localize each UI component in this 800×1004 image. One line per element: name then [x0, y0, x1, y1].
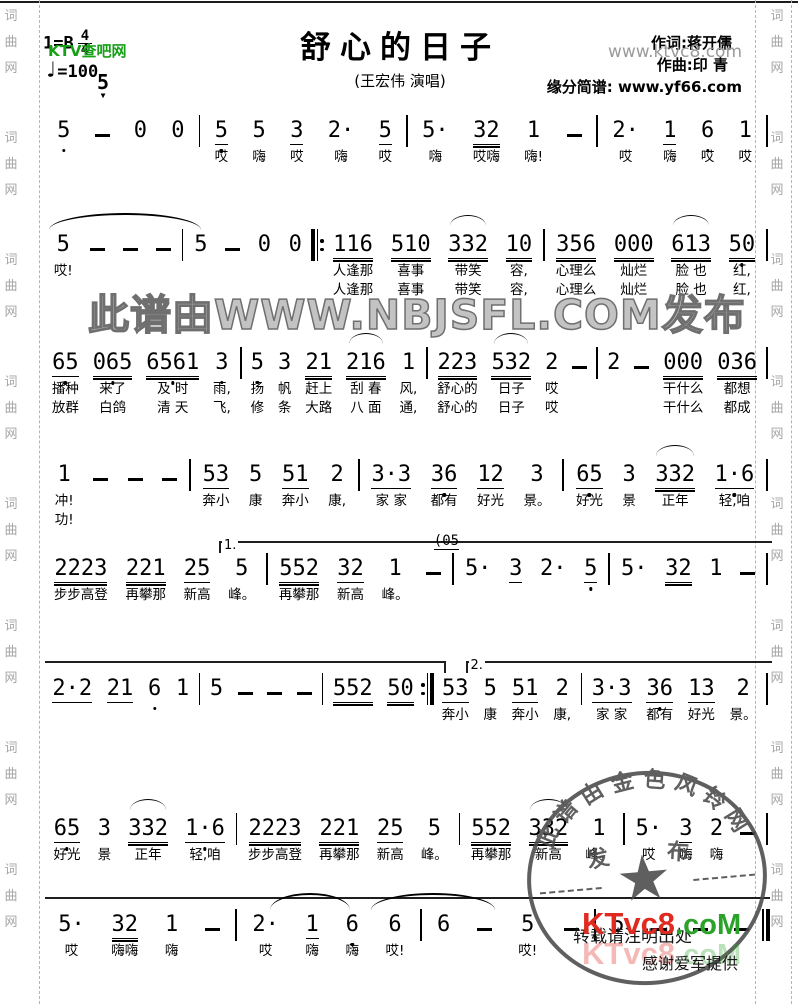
- note: 1·6: [185, 816, 225, 843]
- lyric: 峰。: [421, 846, 448, 865]
- note-cell: 5峰。: [219, 536, 264, 605]
- note: 1: [165, 912, 178, 938]
- duration-dash: [90, 248, 105, 251]
- lyric-verse2: 日子: [498, 399, 525, 418]
- barline: [420, 909, 422, 941]
- lyric: 人逢那: [333, 262, 374, 281]
- lyric-verse2: 哎: [545, 399, 559, 418]
- note: 2: [330, 462, 343, 488]
- note-cell: [555, 98, 594, 167]
- lyric-verse2: 通,: [400, 399, 418, 418]
- ktv-green-watermark: KTV查吧网: [48, 40, 126, 61]
- note-cell: (05: [417, 536, 450, 605]
- lyric: 正年: [662, 492, 689, 511]
- lyric: 新高: [337, 586, 364, 605]
- note: 3·3: [592, 676, 632, 703]
- note-cell: 5康: [476, 656, 504, 725]
- note: 3: [278, 350, 291, 376]
- note-cell: 065来了白鸽: [86, 330, 140, 418]
- note: 5: [194, 232, 207, 258]
- lyric: 哎: [290, 148, 304, 167]
- note: 25: [377, 816, 404, 843]
- lyric: 哎!: [385, 942, 404, 961]
- barline-cell: [764, 536, 770, 605]
- barline: [182, 229, 184, 261]
- note-cell: [230, 656, 260, 725]
- lyric: 康: [249, 492, 263, 511]
- octave-dot: [153, 707, 156, 710]
- music-system-5: 1.2223步步高登221再攀那25新高5峰。552再攀那32新高1峰。(055…: [45, 536, 770, 605]
- lyric: 好光: [688, 706, 715, 725]
- note-cell: 1嗨!: [512, 98, 555, 167]
- note: 32: [337, 556, 364, 583]
- note: 21: [305, 350, 332, 377]
- lyric: 哎: [378, 148, 392, 167]
- note: 065: [93, 350, 133, 377]
- note-cell: 2康,: [546, 656, 578, 725]
- note: 552: [279, 556, 319, 583]
- lyric: 峰。: [382, 586, 409, 605]
- note-cell: 36都有: [639, 656, 681, 725]
- note: 223: [438, 350, 478, 377]
- note: 3: [509, 556, 522, 583]
- note: 5: [428, 816, 441, 842]
- note: 0: [289, 232, 302, 258]
- note: 5: [251, 350, 264, 376]
- note-cell: 1·6轻,咱: [705, 442, 764, 530]
- note-cell: 1风,通,: [393, 330, 425, 418]
- note-cell: 3·3家 家: [362, 442, 421, 530]
- lyric: 干什么: [663, 380, 704, 399]
- note-cell: 5·哎: [45, 892, 98, 961]
- note: 0: [258, 232, 271, 258]
- lyric: 景: [98, 846, 112, 865]
- barline-cell: [764, 656, 770, 725]
- note-cell: 6: [141, 656, 169, 725]
- duration-dash: [740, 572, 755, 575]
- lyric: 景。: [730, 706, 757, 725]
- note: 2·: [252, 912, 279, 938]
- lyric: 脸 也: [675, 262, 706, 281]
- octave-dot: [62, 149, 65, 152]
- barline: [358, 459, 360, 491]
- note-cell: 5: [575, 536, 606, 605]
- note-cell: 5·: [612, 536, 656, 605]
- barline: [766, 115, 768, 147]
- lyric: 奔小: [202, 492, 229, 511]
- note-cell: 2景。: [722, 656, 764, 725]
- note-cell: 1峰。: [373, 536, 418, 605]
- note: 510: [391, 232, 431, 259]
- note: 1·6: [715, 462, 755, 489]
- note: 3·3: [371, 462, 411, 489]
- note-cell: 53奔小: [193, 442, 239, 530]
- note: 53: [442, 676, 469, 703]
- lyric: 奔小: [512, 706, 539, 725]
- note: 000: [614, 232, 654, 259]
- note: 6: [148, 676, 161, 702]
- lyric: 新高: [184, 586, 211, 605]
- note: 5·: [58, 912, 85, 938]
- lyric: 舒心的: [437, 380, 478, 399]
- note-cell: 32嗨嗨: [98, 892, 152, 961]
- note-cell: 3哎: [278, 98, 316, 167]
- lyric-verse2: 都成: [724, 399, 751, 418]
- note: 2: [545, 350, 558, 376]
- note-cell: [463, 892, 505, 961]
- note-cell: 5扬修: [244, 330, 271, 418]
- note: 5·: [621, 556, 648, 582]
- repeat-end-barline: [421, 673, 434, 705]
- lyric: 新高: [377, 846, 404, 865]
- barline-cell: [764, 212, 770, 300]
- lyric: 景。: [524, 492, 551, 511]
- note-cell: 6: [424, 892, 464, 961]
- note: 50: [387, 676, 414, 703]
- barline: [562, 459, 564, 491]
- note-cell: 3·3家 家: [584, 656, 638, 725]
- lyric: 好光: [477, 492, 504, 511]
- note: 36: [646, 676, 673, 703]
- note-cell: 5·嗨: [410, 98, 461, 167]
- note: 116: [333, 232, 373, 259]
- barline: [240, 347, 242, 379]
- lyric: 冲!: [55, 492, 74, 511]
- note: 1: [306, 912, 319, 939]
- barline: [322, 673, 324, 705]
- note-cell: [260, 656, 290, 725]
- barline: [406, 115, 408, 147]
- note-cell: 332正年: [646, 442, 705, 530]
- lyric: 风,: [400, 380, 418, 399]
- note: 5: [57, 118, 70, 144]
- note: 532: [491, 350, 531, 377]
- note: 332: [128, 816, 168, 843]
- lyric: 康,: [328, 492, 346, 511]
- note-cell: 2·哎: [600, 98, 651, 167]
- duration-dash: [95, 134, 110, 137]
- lyric-verse2: 飞,: [213, 399, 231, 418]
- lyric: 步步高登: [54, 586, 108, 605]
- note-cell: 0: [122, 98, 159, 167]
- lyric: 步步高登: [248, 846, 302, 865]
- note: 32: [112, 912, 139, 939]
- lyric: 家 家: [376, 492, 407, 511]
- barline: [199, 115, 201, 147]
- lyric: 带笑: [455, 262, 482, 281]
- note: 6: [346, 912, 359, 938]
- note-cell: 5哎: [203, 98, 241, 167]
- duration-dash: [123, 248, 138, 251]
- lyric-verse2: 功!: [55, 511, 74, 530]
- duration-dash: [267, 692, 282, 695]
- note-cell: [565, 330, 594, 418]
- note: 50: [729, 232, 756, 259]
- note: 36: [431, 462, 458, 489]
- note-cell: 3景。: [514, 442, 560, 530]
- note: 12: [477, 462, 504, 489]
- duration-dash: [634, 366, 649, 369]
- note: 1: [402, 350, 415, 376]
- note-cell: [83, 442, 117, 530]
- lyric: 哎: [739, 148, 753, 167]
- note-cell: 332正年: [120, 796, 177, 865]
- note-cell: 5: [45, 98, 82, 167]
- note: 1: [389, 556, 402, 582]
- note: 51: [282, 462, 309, 489]
- note-cell: 552: [326, 656, 380, 725]
- note-cell: 25新高: [175, 536, 220, 605]
- lyric-verse2: 清 天: [157, 399, 188, 418]
- note-cell: 5哎: [366, 98, 404, 167]
- note-cell: 6哎!: [372, 892, 417, 961]
- note-cell: 1嗨: [651, 98, 689, 167]
- note: 6: [437, 912, 450, 938]
- barline: [452, 553, 454, 585]
- note-cell: 5峰。: [412, 796, 456, 865]
- note: 332: [448, 232, 488, 259]
- note: 552: [471, 816, 511, 843]
- barline: [766, 459, 768, 491]
- lyric: 奔小: [282, 492, 309, 511]
- thanks-credit: 感谢爱军提供: [642, 950, 738, 974]
- lyric: 嗨: [429, 148, 443, 167]
- note-cell: 1嗨: [152, 892, 192, 961]
- barline: [543, 229, 545, 261]
- barline: [766, 229, 768, 261]
- note: 6: [388, 912, 401, 938]
- note-cell: 2223步步高登: [239, 796, 310, 865]
- note-cell: 53奔小: [434, 656, 476, 725]
- note: 13: [688, 676, 715, 703]
- ktvc8-watermark: www.ktvc8.com: [608, 42, 742, 62]
- barline: [766, 553, 768, 585]
- note: 221: [319, 816, 359, 843]
- note: 2223: [54, 556, 107, 583]
- note: 3: [98, 816, 111, 842]
- note: 6561: [146, 350, 199, 377]
- note: 0: [171, 118, 184, 144]
- lyric: 嗨: [663, 148, 677, 167]
- note-cell: 1嗨: [292, 892, 332, 961]
- note: 356: [556, 232, 596, 259]
- lyric: 再攀那: [471, 846, 512, 865]
- note-cell: 3: [500, 536, 531, 605]
- lyric: 嗨!: [524, 148, 543, 167]
- note-cell: 3帆条: [271, 330, 298, 418]
- note-cell: 216刮 春八 面: [339, 330, 393, 418]
- barline: [189, 459, 191, 491]
- note: 3: [215, 350, 228, 376]
- stamp-char: 色: [643, 769, 666, 792]
- lyric-verse2: 舒心的: [437, 399, 478, 418]
- note: 332: [655, 462, 695, 489]
- note-cell: 12好光: [467, 442, 513, 530]
- note-cell: 2·哎: [239, 892, 292, 961]
- duration-dash: [297, 692, 312, 695]
- octave-dot: [589, 587, 592, 590]
- note: 5: [379, 118, 392, 145]
- barline-cell: [764, 98, 770, 167]
- note-cell: [192, 892, 234, 961]
- note: 1: [663, 118, 676, 145]
- note-cell: 65好光: [45, 796, 89, 865]
- lyric: 哎!: [54, 262, 73, 281]
- note-cell: 221再攀那: [311, 796, 369, 865]
- note-cell: 32新高: [328, 536, 373, 605]
- note-cell: 1哎: [726, 98, 764, 167]
- note: 5·: [422, 118, 449, 144]
- duration-dash: [238, 692, 253, 695]
- music-system-6: 2.2·2216155525053奔小5康51奔小2康,3·3家 家36都有13…: [45, 656, 770, 725]
- duration-dash: [567, 134, 582, 137]
- lyric: 帆: [278, 380, 292, 399]
- lyric: 哎: [259, 942, 273, 961]
- barline: [199, 673, 201, 705]
- note-cell: 3雨,飞,: [206, 330, 238, 418]
- note: 5: [249, 462, 262, 488]
- note-cell: 25新高: [368, 796, 412, 865]
- note-cell: [118, 442, 152, 530]
- lyric: 嗨嗨: [111, 942, 138, 961]
- note-cell: 1·6轻,咱: [177, 796, 234, 865]
- duration-dash: [93, 478, 108, 481]
- note-cell: [152, 442, 186, 530]
- barline: [608, 553, 610, 585]
- barline-cell: [764, 330, 770, 418]
- lyric: 康: [483, 706, 497, 725]
- note-cell: 2·嗨: [316, 98, 367, 167]
- note-cell: 552再攀那: [270, 536, 328, 605]
- note-cell: 6561及 时清 天: [139, 330, 206, 418]
- lyric: 都想: [724, 380, 751, 399]
- lyric-verse2: 放群: [52, 399, 79, 418]
- lyric: 康,: [553, 706, 571, 725]
- note: 1: [527, 118, 540, 144]
- note-cell: 3景: [89, 796, 120, 865]
- note: 552: [333, 676, 373, 703]
- note-cell: 51奔小: [272, 442, 318, 530]
- lyric: 嗨: [165, 942, 179, 961]
- note-cell: 5: [203, 656, 231, 725]
- note-cell: 1冲!功!: [45, 442, 83, 530]
- note-cell: [627, 330, 656, 418]
- note-cell: 36都有: [421, 442, 467, 530]
- barline: [459, 813, 461, 845]
- lyric: 正年: [135, 846, 162, 865]
- note: 5: [252, 118, 265, 144]
- note-cell: 5·: [456, 536, 500, 605]
- note: 65: [54, 816, 81, 843]
- duration-dash: [426, 572, 441, 575]
- note-cell: 32: [656, 536, 700, 605]
- note: 000: [663, 350, 703, 377]
- note-cell: [731, 536, 764, 605]
- barline: [235, 909, 237, 941]
- lyric: 景: [622, 492, 636, 511]
- note-cell: 6嗨: [332, 892, 372, 961]
- music-system-1: 5005哎5嗨3哎2·嗨5哎5·嗨32哎嗨1嗨!2·哎1嗨6哎1哎: [45, 98, 770, 167]
- barline: [266, 553, 268, 585]
- lyric-verse2: 干什么: [663, 399, 704, 418]
- duration-dash: [162, 478, 177, 481]
- note-cell: 552再攀那: [462, 796, 520, 865]
- note: 5: [215, 118, 228, 145]
- note-cell: [290, 656, 320, 725]
- note: 2·: [540, 556, 567, 582]
- lyric: 峰。: [228, 586, 255, 605]
- note: 216: [346, 350, 386, 377]
- barline: [596, 115, 598, 147]
- lyric: 刮 春: [350, 380, 381, 399]
- note-cell: 65好光: [566, 442, 612, 530]
- barline: [766, 347, 768, 379]
- note-cell: 036都想都成: [710, 330, 764, 418]
- lyric: 哎: [65, 942, 79, 961]
- note: 10: [506, 232, 533, 259]
- lyric: 嗨: [334, 148, 348, 167]
- note: 2223: [249, 816, 302, 843]
- duration-dash: [156, 248, 171, 251]
- note-cell: 13好光: [681, 656, 723, 725]
- nbjsfl-watermark: 此谱由WWW.NBJSFL.COM发布: [88, 281, 746, 341]
- note: 221: [126, 556, 166, 583]
- lyric: 喜事: [397, 262, 424, 281]
- barline-cell: [764, 442, 770, 530]
- lyric: 灿烂: [620, 262, 647, 281]
- stamp-fa: 发: [585, 847, 611, 873]
- lyric: 奔小: [442, 706, 469, 725]
- note-cell: 3景: [613, 442, 646, 530]
- note: 2: [607, 350, 620, 376]
- note-cell: [82, 98, 121, 167]
- note: 1: [176, 676, 189, 702]
- note-cell: 223舒心的舒心的: [430, 330, 484, 418]
- lyric: 再攀那: [279, 586, 320, 605]
- note-cell: 21赶上大路: [298, 330, 339, 418]
- note: 25: [184, 556, 211, 583]
- note: 3: [530, 462, 543, 488]
- note: 53: [203, 462, 230, 489]
- note-cell: 221再攀那: [117, 536, 175, 605]
- duration-dash: [205, 928, 220, 931]
- lyric: 再攀那: [319, 846, 360, 865]
- note: 2·: [612, 118, 639, 144]
- lyric: 赶上: [305, 380, 332, 399]
- lyric: 哎: [619, 148, 633, 167]
- lyric: 哎: [545, 380, 559, 399]
- barline: [236, 813, 238, 845]
- note: 6: [701, 118, 714, 144]
- lyric-verse2: 条: [278, 399, 292, 418]
- note-cell: 50: [380, 656, 421, 725]
- note-cell: 65播种放群: [45, 330, 86, 418]
- note: 613: [671, 232, 711, 259]
- note: 65: [576, 462, 603, 489]
- note-cell: 32哎嗨: [461, 98, 512, 167]
- note-cell: 5哎!: [45, 212, 82, 300]
- note-cell: 1: [700, 536, 731, 605]
- note-cell: 5嗨: [240, 98, 278, 167]
- note: 32: [665, 556, 692, 583]
- note: 3: [623, 462, 636, 488]
- note: 1: [709, 556, 722, 582]
- note-cell: 2: [600, 330, 627, 418]
- note: 21: [107, 676, 134, 703]
- note: 5: [210, 676, 223, 702]
- lyric-verse2: 修: [251, 399, 265, 418]
- note-cell: 532日子日子: [485, 330, 539, 418]
